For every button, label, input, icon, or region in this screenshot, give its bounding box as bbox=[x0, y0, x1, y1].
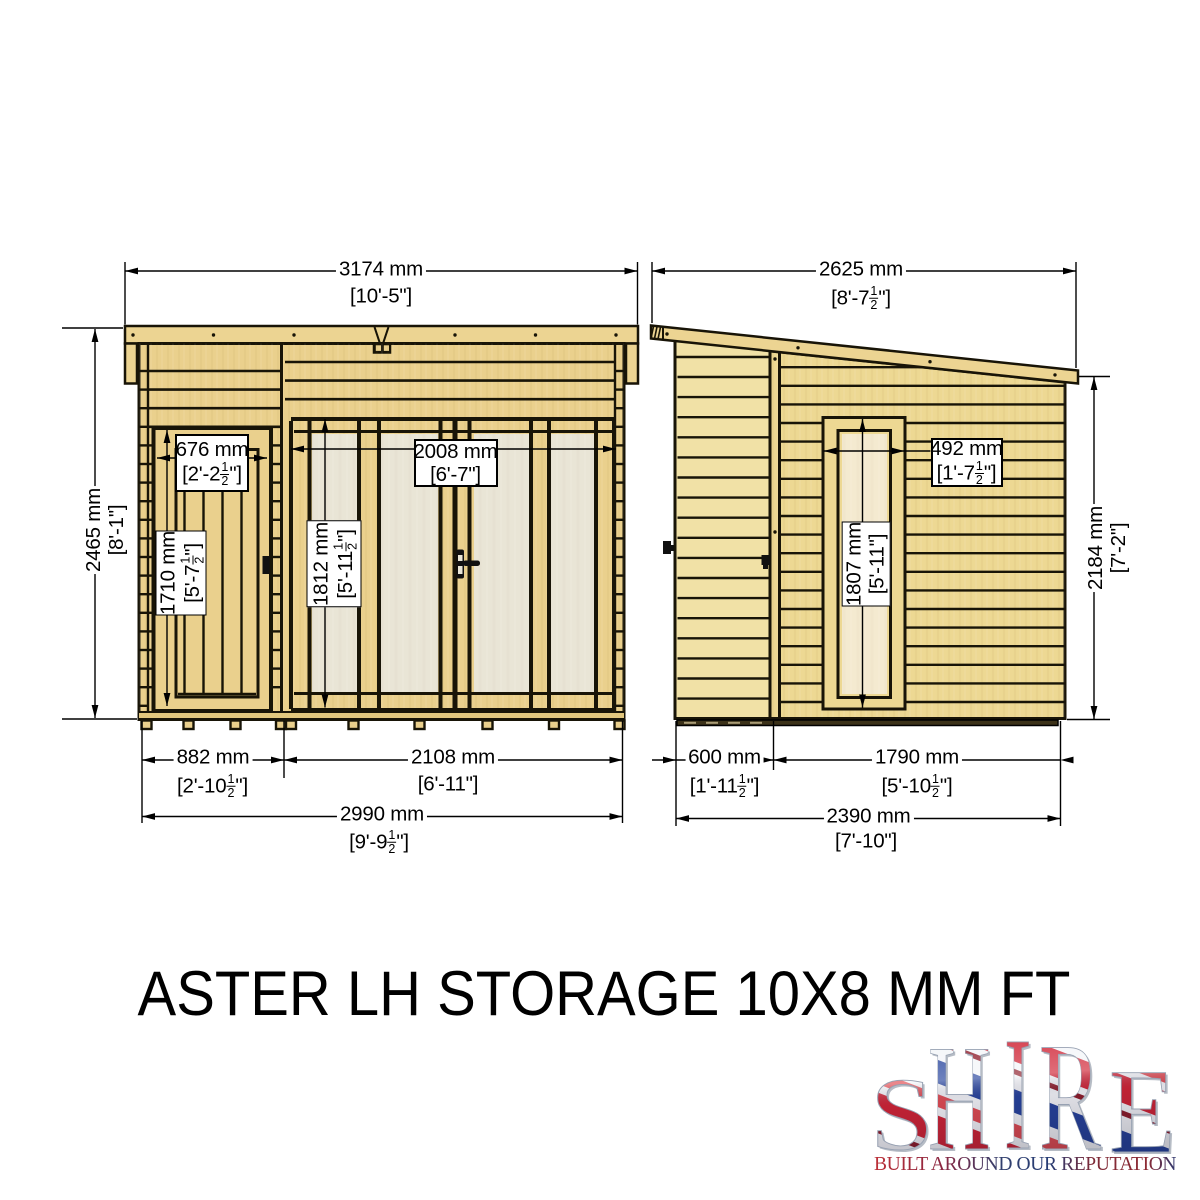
svg-text:BUILT AROUND OUR REPUTATION: BUILT AROUND OUR REPUTATION bbox=[874, 1154, 1177, 1175]
